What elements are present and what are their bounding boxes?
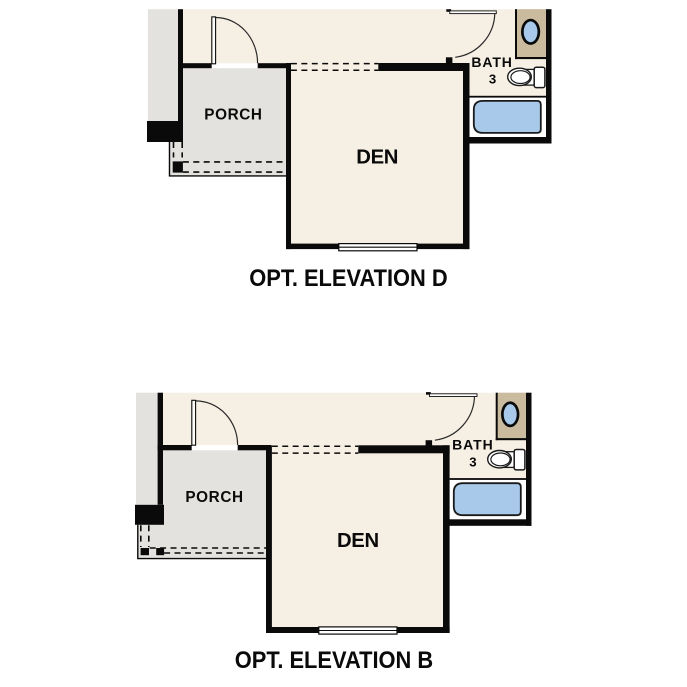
svg-text:BATH: BATH xyxy=(471,54,512,70)
svg-text:BATH: BATH xyxy=(452,436,493,452)
svg-text:DEN: DEN xyxy=(337,530,379,552)
svg-text:PORCH: PORCH xyxy=(204,107,262,124)
svg-text:3: 3 xyxy=(489,72,496,87)
svg-text:DEN: DEN xyxy=(356,146,398,168)
svg-text:3: 3 xyxy=(469,454,476,469)
svg-text:OPT. ELEVATION B: OPT. ELEVATION B xyxy=(235,646,433,673)
svg-text:OPT. ELEVATION D: OPT. ELEVATION D xyxy=(249,264,447,291)
svg-text:PORCH: PORCH xyxy=(185,489,243,506)
